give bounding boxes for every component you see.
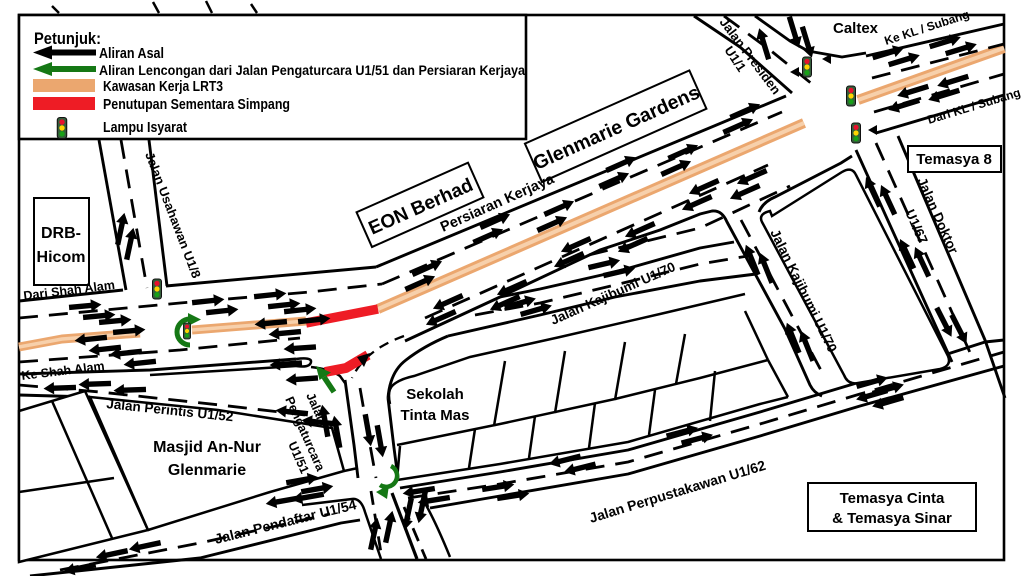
svg-text:& Temasya Sinar: & Temasya Sinar xyxy=(832,510,952,527)
svg-text:Caltex: Caltex xyxy=(833,20,879,37)
svg-text:Penutupan Sementara Simpang: Penutupan Sementara Simpang xyxy=(103,97,290,113)
svg-text:DRB-: DRB- xyxy=(41,225,81,242)
svg-text:Glenmarie: Glenmarie xyxy=(168,462,246,479)
svg-text:Aliran Asal: Aliran Asal xyxy=(99,46,164,62)
svg-text:Temasya Cinta: Temasya Cinta xyxy=(840,490,945,507)
svg-text:Hicom: Hicom xyxy=(37,249,86,266)
svg-text:Temasya 8: Temasya 8 xyxy=(916,151,992,168)
svg-text:Tinta Mas: Tinta Mas xyxy=(401,407,470,424)
svg-text:Sekolah: Sekolah xyxy=(406,386,464,403)
svg-text:Masjid An-Nur: Masjid An-Nur xyxy=(153,439,261,456)
svg-text:Lampu Isyarat: Lampu Isyarat xyxy=(103,120,187,136)
svg-text:Aliran Lencongan dari Jalan Pe: Aliran Lencongan dari Jalan Pengaturcara… xyxy=(99,63,525,78)
svg-text:Kawasan Kerja LRT3: Kawasan Kerja LRT3 xyxy=(103,79,223,95)
svg-text:Petunjuk:: Petunjuk: xyxy=(34,30,101,48)
